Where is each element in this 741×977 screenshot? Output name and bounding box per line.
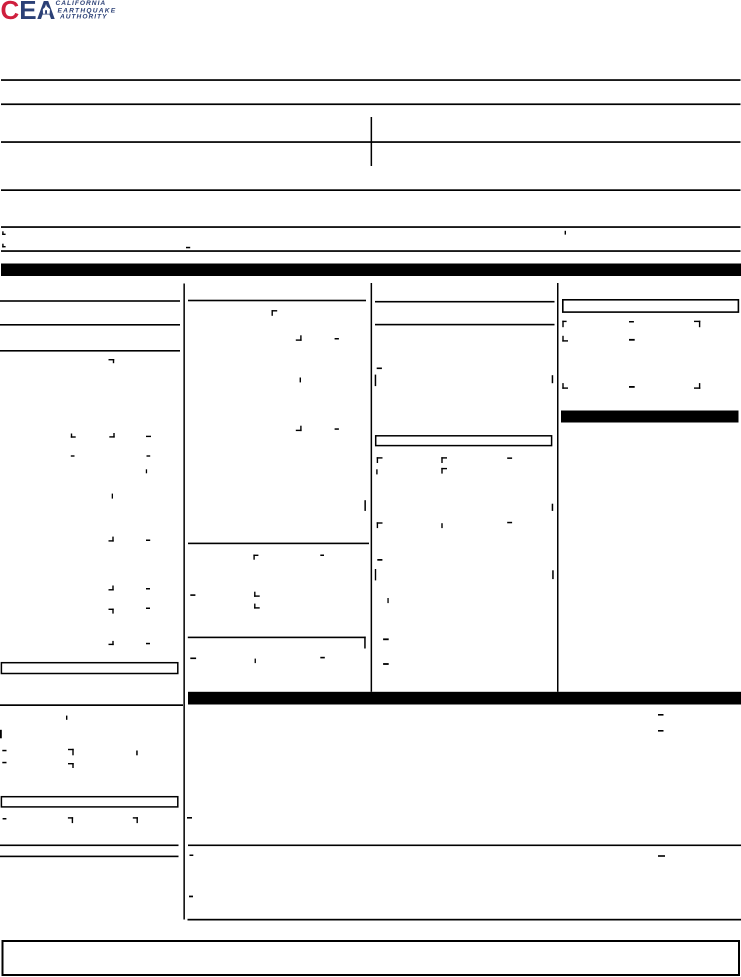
svg-text:CALIFORNIA: CALIFORNIA	[56, 0, 107, 7]
svg-text:AUTHORITY: AUTHORITY	[59, 14, 107, 21]
